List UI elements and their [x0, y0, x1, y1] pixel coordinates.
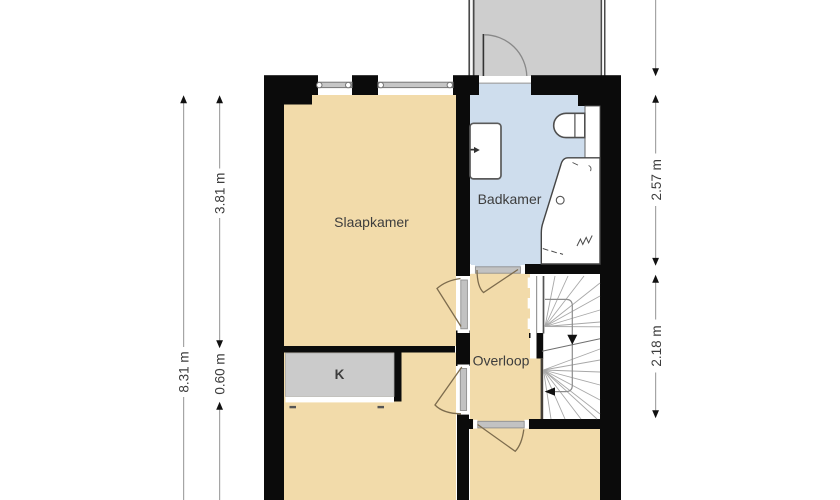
svg-text:Badkamer: Badkamer: [478, 191, 542, 207]
svg-text:3.81 m: 3.81 m: [213, 173, 228, 214]
svg-text:0.60 m: 0.60 m: [213, 353, 228, 394]
svg-text:Slaapkamer: Slaapkamer: [334, 214, 409, 230]
svg-text:8.31 m: 8.31 m: [177, 351, 192, 392]
svg-text:2.57 m: 2.57 m: [649, 159, 664, 200]
svg-text:K: K: [335, 367, 345, 382]
svg-text:2.18 m: 2.18 m: [649, 325, 664, 366]
svg-text:Overloop: Overloop: [473, 353, 530, 369]
